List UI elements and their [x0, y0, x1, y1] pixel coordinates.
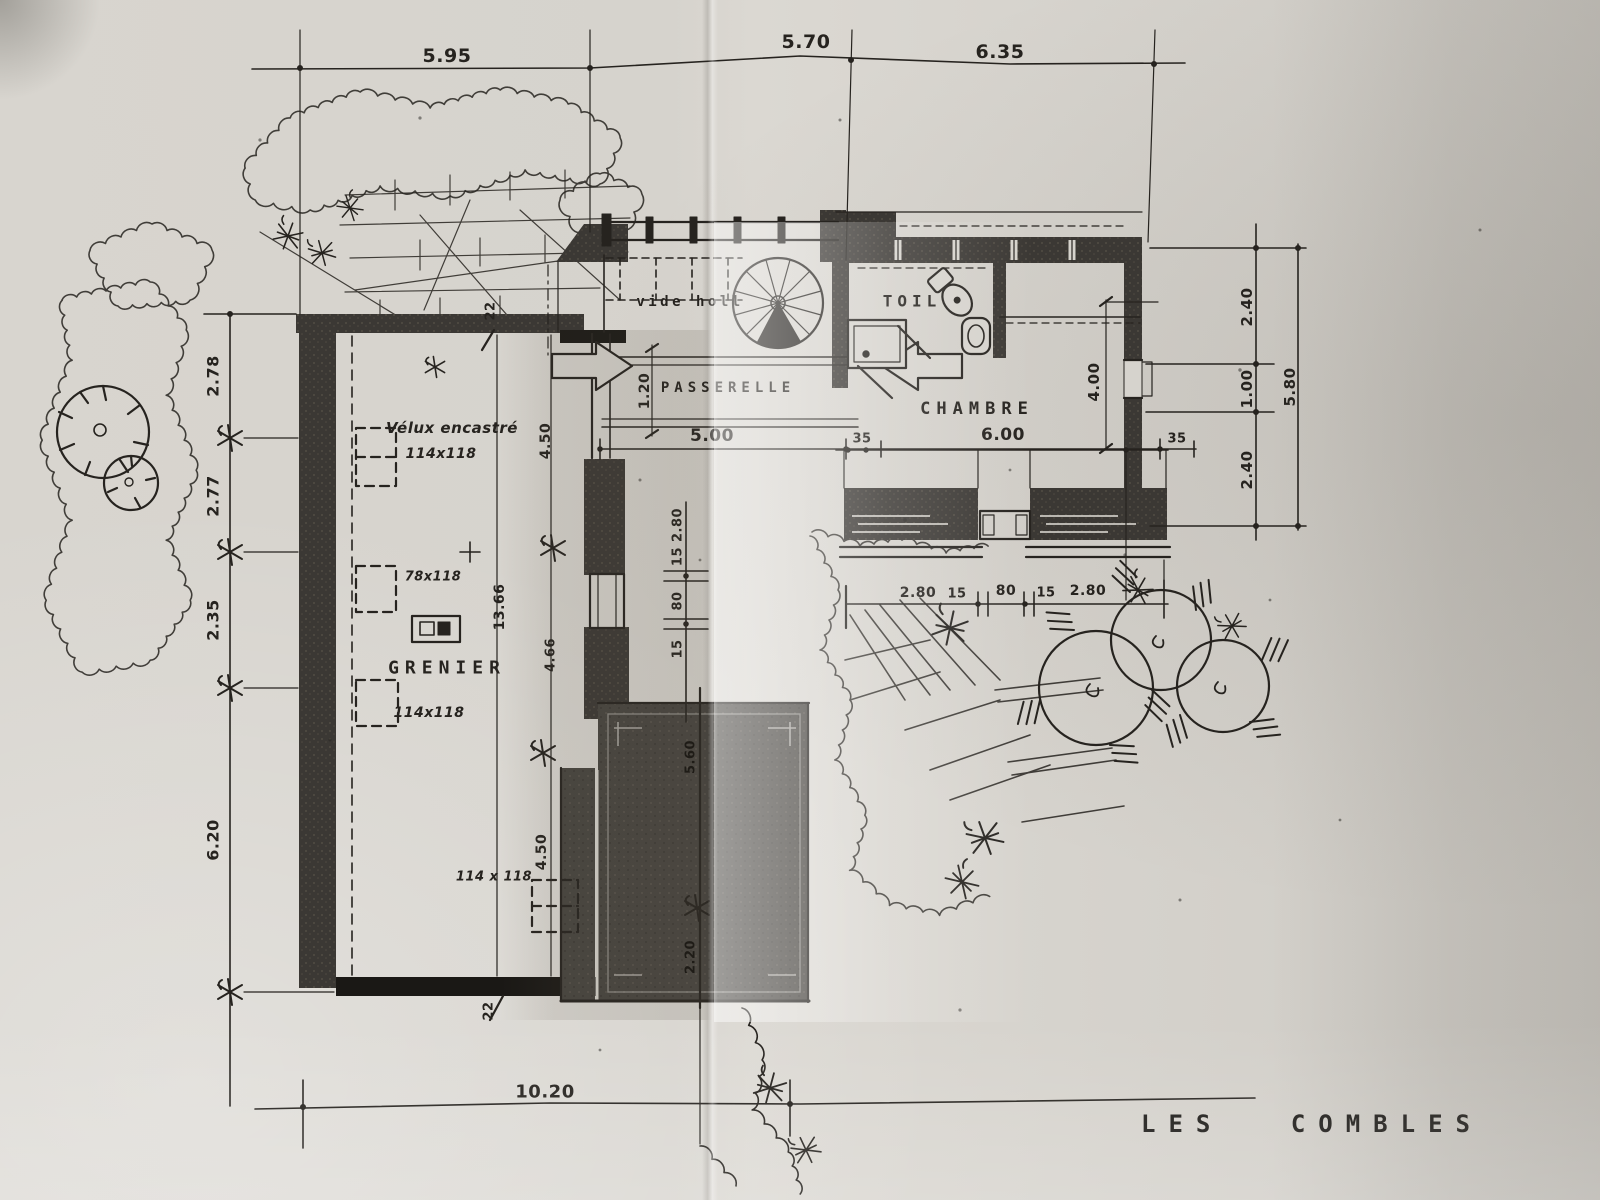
dim-top-1-label: 5.95 — [423, 45, 472, 67]
dim-bottom — [255, 1080, 1255, 1148]
note-velux-label: Vélux encastré — [386, 419, 518, 437]
dim-right-1-label: 2.40 — [1238, 287, 1256, 326]
dim-bottom-label: 10.20 — [515, 1082, 574, 1103]
dim-south-5-label: 2.80 — [1070, 583, 1107, 599]
note-size3-label: 114x118 — [394, 705, 465, 721]
dim-gap-3-label: 15 — [671, 639, 686, 658]
dim-south-1-label: 2.80 — [900, 585, 937, 601]
dim-passerelle-label: 5.00 — [690, 426, 734, 446]
dim-left-3-label: 2.35 — [204, 599, 223, 640]
dim-south-2-label: 15 — [947, 587, 966, 602]
vegetation-top-left — [40, 87, 643, 675]
dim-right-total-label: 5.80 — [1281, 367, 1299, 406]
dim-bridge-width-label: 1.20 — [637, 373, 653, 410]
spiral-staircase — [733, 258, 823, 348]
plants-scattered — [752, 568, 1249, 1167]
dim-left-2-label: 2.77 — [204, 475, 223, 516]
room-toil-label: TOIL — [883, 292, 942, 311]
dim-terrace-1-label: 5.60 — [684, 740, 699, 774]
dim-wall-right-label: 35 — [1167, 432, 1186, 447]
dim-south-3-label: 80 — [996, 583, 1016, 599]
trees-left — [57, 386, 158, 510]
dim-terrace-2-label: 2.20 — [684, 940, 699, 974]
floorplan-sheet: 5.95 5.70 6.35 2.78 2.77 2.35 6.20 2.40 … — [0, 0, 1600, 1200]
dim-grenier-total-label: 13.66 — [492, 584, 508, 631]
dim-left-1-label: 2.78 — [204, 355, 223, 396]
dim-top-2-label: 5.70 — [782, 31, 831, 53]
twig-marks — [271, 189, 368, 268]
balcony-railing — [602, 214, 838, 246]
dim-left-4-label: 6.20 — [204, 819, 223, 860]
dim-grenier-3-label: 4.50 — [534, 834, 550, 871]
sheet-title: LES COMBLES — [1141, 1110, 1483, 1138]
garden-path — [700, 1008, 802, 1194]
note-size2-label: 78x118 — [405, 570, 462, 585]
dim-chambre-depth-label: 4.00 — [1085, 362, 1103, 401]
note-size1-label: 114x118 — [406, 446, 477, 462]
dim-right-3-label: 2.40 — [1238, 450, 1256, 489]
dim-grenier-1-label: 4.50 — [538, 423, 554, 460]
dim-gap-2-label: 80 — [671, 591, 686, 610]
dim-top — [252, 30, 1185, 314]
dim-gap-1-label: 15 2.80 — [671, 508, 686, 566]
dim-south-4-label: 15 — [1036, 586, 1055, 601]
dim-top-3-label: 6.35 — [976, 41, 1025, 63]
dim-grenier-2-label: 4.66 — [544, 638, 559, 672]
room-passerelle-label: PASSERELLE — [661, 380, 795, 396]
plan-drawing — [0, 0, 1600, 1200]
dim-chambre-width-label: 6.00 — [981, 425, 1025, 445]
dim-right-2-label: 1.00 — [1238, 369, 1256, 408]
dim-wall-left-label: 35 — [852, 432, 871, 447]
dim-wall22-bottom-label: 22 — [482, 1001, 497, 1020]
room-vide-label: vide holl — [636, 294, 743, 310]
dim-wall22-top-label: 22 — [484, 301, 499, 320]
room-chambre-label: CHAMBRE — [920, 399, 1034, 419]
note-size4-label: 114 x 118 — [456, 870, 532, 885]
room-grenier-label: GRENIER — [388, 658, 506, 679]
